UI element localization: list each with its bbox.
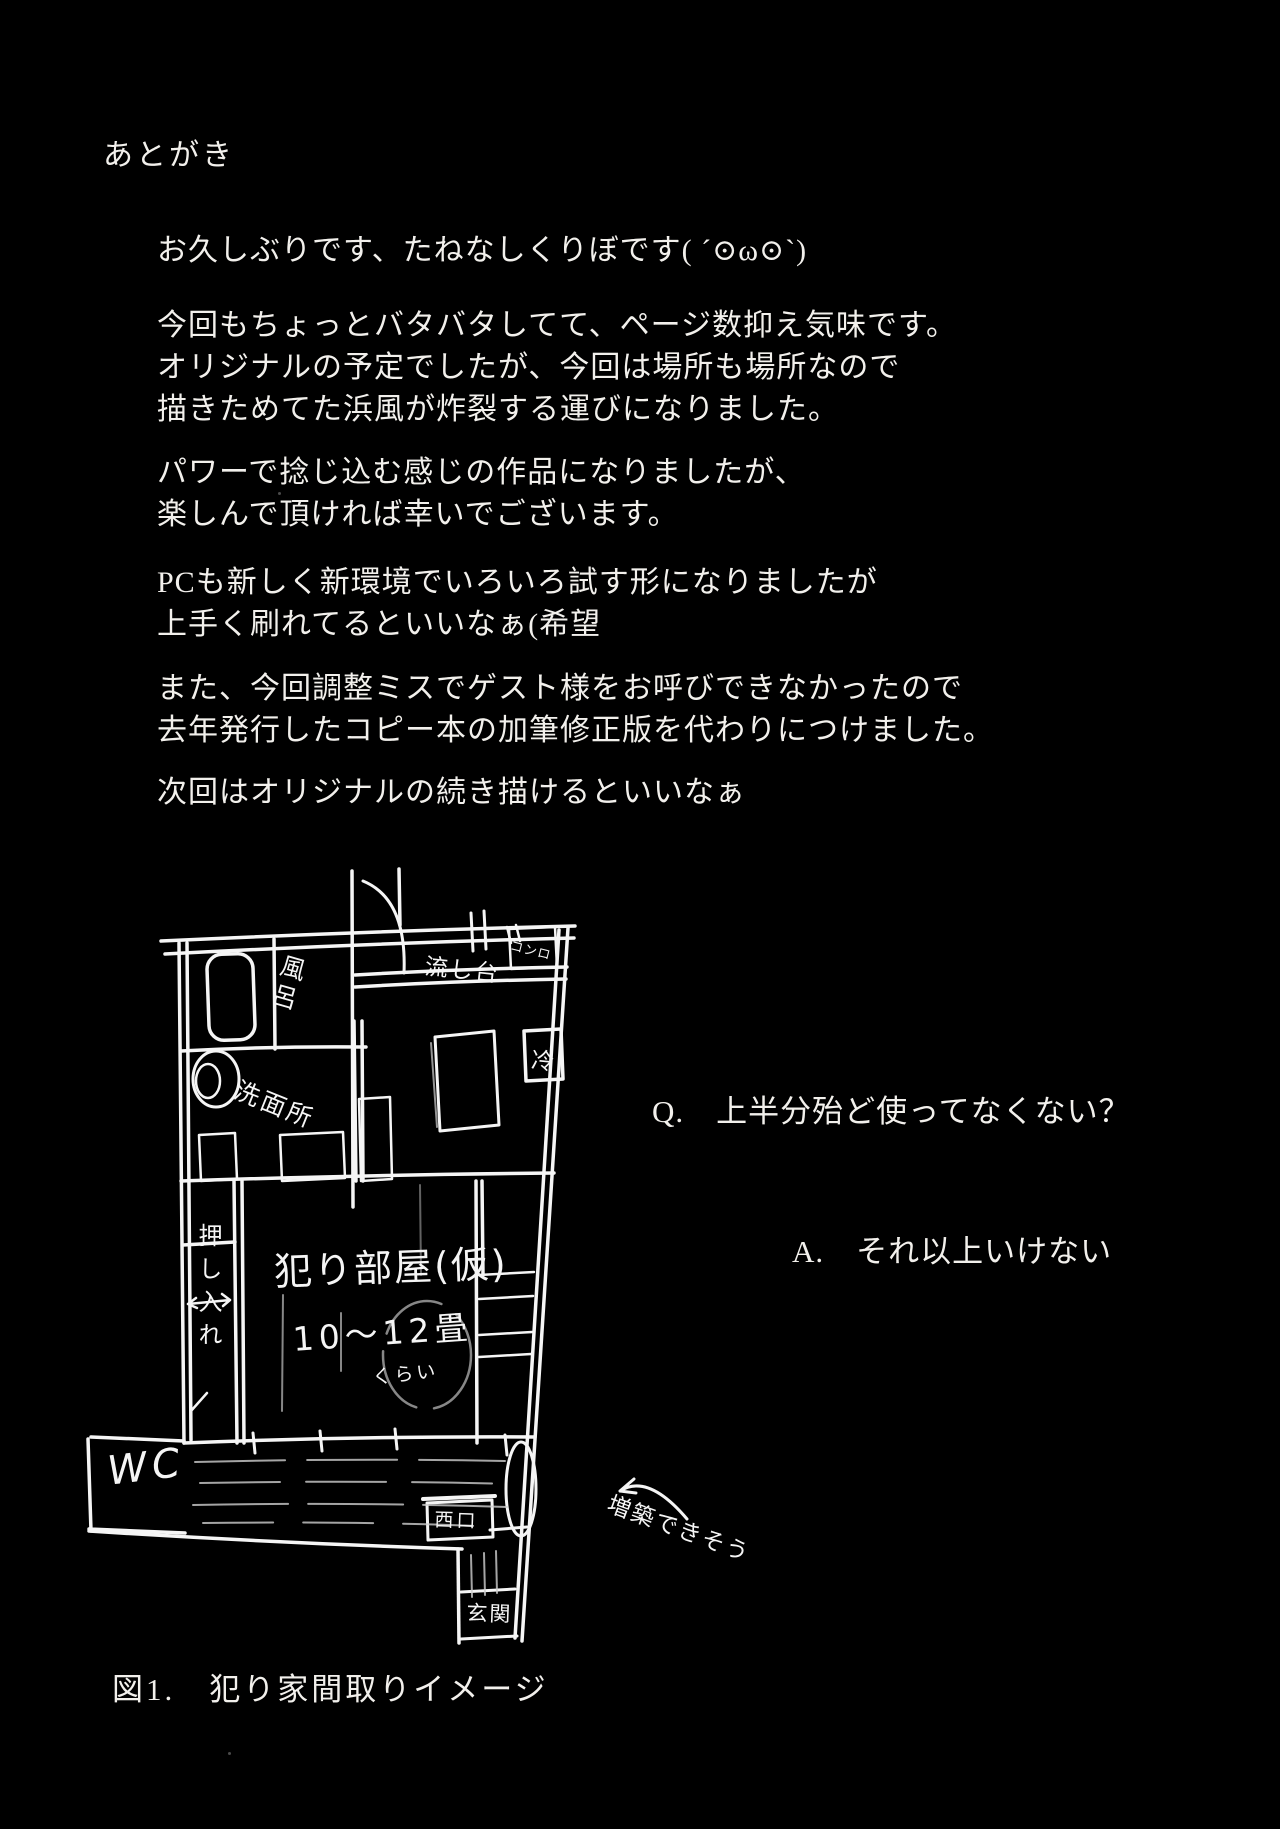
room-label-side-door: 西口 — [434, 1505, 479, 1534]
afterword-line: また、今回調整ミスでゲスト様をお呼びできなかったので — [157, 668, 994, 710]
afterword-line: 去年発行したコピー本の加筆修正版を代わりにつけました。 — [157, 710, 994, 752]
room-label-closet: 押し入れ — [191, 1223, 226, 1423]
afterword-line: お久しぶりです、たねなしくりぼです( ´⊙ω⊙`) — [157, 230, 807, 272]
afterword-line: オリジナルの予定でしたが、今回は場所も場所なので — [157, 347, 957, 389]
afterword-line: 描きためてた浜風が炸裂する運びになりました。 — [157, 389, 957, 431]
afterword-paragraph: また、今回調整ミスでゲスト様をお呼びできなかったので 去年発行したコピー本の加筆… — [157, 668, 994, 752]
afterword-line: 上手く刷れてるといいなぁ(希望 — [157, 604, 878, 646]
room-label-entrance: 玄関 — [466, 1597, 513, 1629]
afterword-line: パワーで捻じ込む感じの作品になりましたが、 — [157, 452, 806, 494]
page-title: あとがき — [103, 130, 235, 174]
room-label-main-room: 犯り部屋(仮) — [273, 1233, 508, 1296]
afterword-paragraph: パワーで捻じ込む感じの作品になりましたが、 楽しんで頂ければ幸いでございます。 — [157, 452, 806, 536]
afterword-line: 今回もちょっとバタバタしてて、ページ数抑え気味です。 — [157, 305, 957, 347]
figure-caption: 図1. 犯り家間取りイメージ — [112, 1664, 549, 1709]
room-label-fridge: 冷 — [530, 1041, 556, 1077]
afterword-line: PCも新しく新環境でいろいろ試す形になりましたが — [157, 562, 878, 604]
afterword-line: 楽しんで頂ければ幸いでございます。 — [157, 494, 806, 536]
scan-speck — [278, 492, 281, 495]
afterword-paragraph: 次回はオリジナルの続き描けるといいなぁ — [157, 772, 746, 814]
table-shape — [435, 1031, 499, 1131]
bathtub-shape — [207, 953, 256, 1041]
afterword-paragraph: PCも新しく新環境でいろいろ試す形になりましたが 上手く刷れてるといいなぁ(希望 — [157, 562, 878, 646]
scan-speck — [228, 1752, 231, 1755]
afterword-paragraph: お久しぶりです、たねなしくりぼです( ´⊙ω⊙`) — [157, 230, 807, 272]
room-label-wc: WC — [105, 1440, 188, 1495]
afterword-line: 次回はオリジナルの続き描けるといいなぁ — [157, 772, 746, 814]
afterword-paragraph: 今回もちょっとバタバタしてて、ページ数抑え気味です。 オリジナルの予定でしたが、… — [157, 305, 957, 431]
floorplan-diagram: 風呂 流し台 コンロ 冷 洗面所 押し入れ 犯り部屋(仮) 10〜12畳 くらい… — [75, 855, 795, 1645]
qa-answer: A. それ以上いけない — [792, 1226, 1112, 1271]
